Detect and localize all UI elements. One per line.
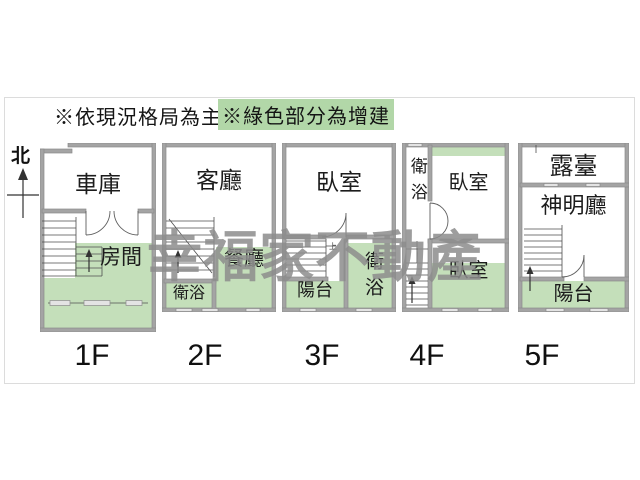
north-label: 北: [11, 141, 30, 168]
note-current-layout: ※依現況格局為主: [54, 101, 222, 130]
floorplan-5f: 露臺 神明廳 陽台: [518, 143, 629, 312]
room-label-garage: 車庫: [40, 173, 156, 197]
floor-label-5f: 5F: [502, 339, 582, 373]
floorplan-1f: 車庫 房間: [40, 143, 156, 332]
room-label-terrace: 露臺: [518, 154, 629, 179]
floor-label-1f: 1F: [52, 339, 132, 373]
floor-label-3f: 3F: [282, 339, 362, 373]
north-arrow-icon: [4, 167, 42, 221]
floorplan-diagram: ※依現況格局為主 ※綠色部分為增建 北 車庫: [0, 0, 640, 480]
note-green-addition: ※綠色部分為增建: [218, 99, 394, 130]
room-label-bedroom-upper: 臥室: [428, 172, 509, 193]
floor-label-4f: 4F: [387, 339, 467, 373]
room-label-room: 房間: [100, 246, 142, 268]
room-label-living: 客廳: [162, 169, 276, 193]
room-label-bedroom: 臥室: [282, 171, 396, 195]
agency-watermark: 幸福家不動產: [147, 212, 483, 292]
room-label-balcony: 陽台: [522, 283, 625, 304]
room-label-bath: 衛浴: [407, 157, 425, 209]
room-label-shrine: 神明廳: [518, 195, 629, 218]
floor-label-2f: 2F: [165, 339, 245, 373]
